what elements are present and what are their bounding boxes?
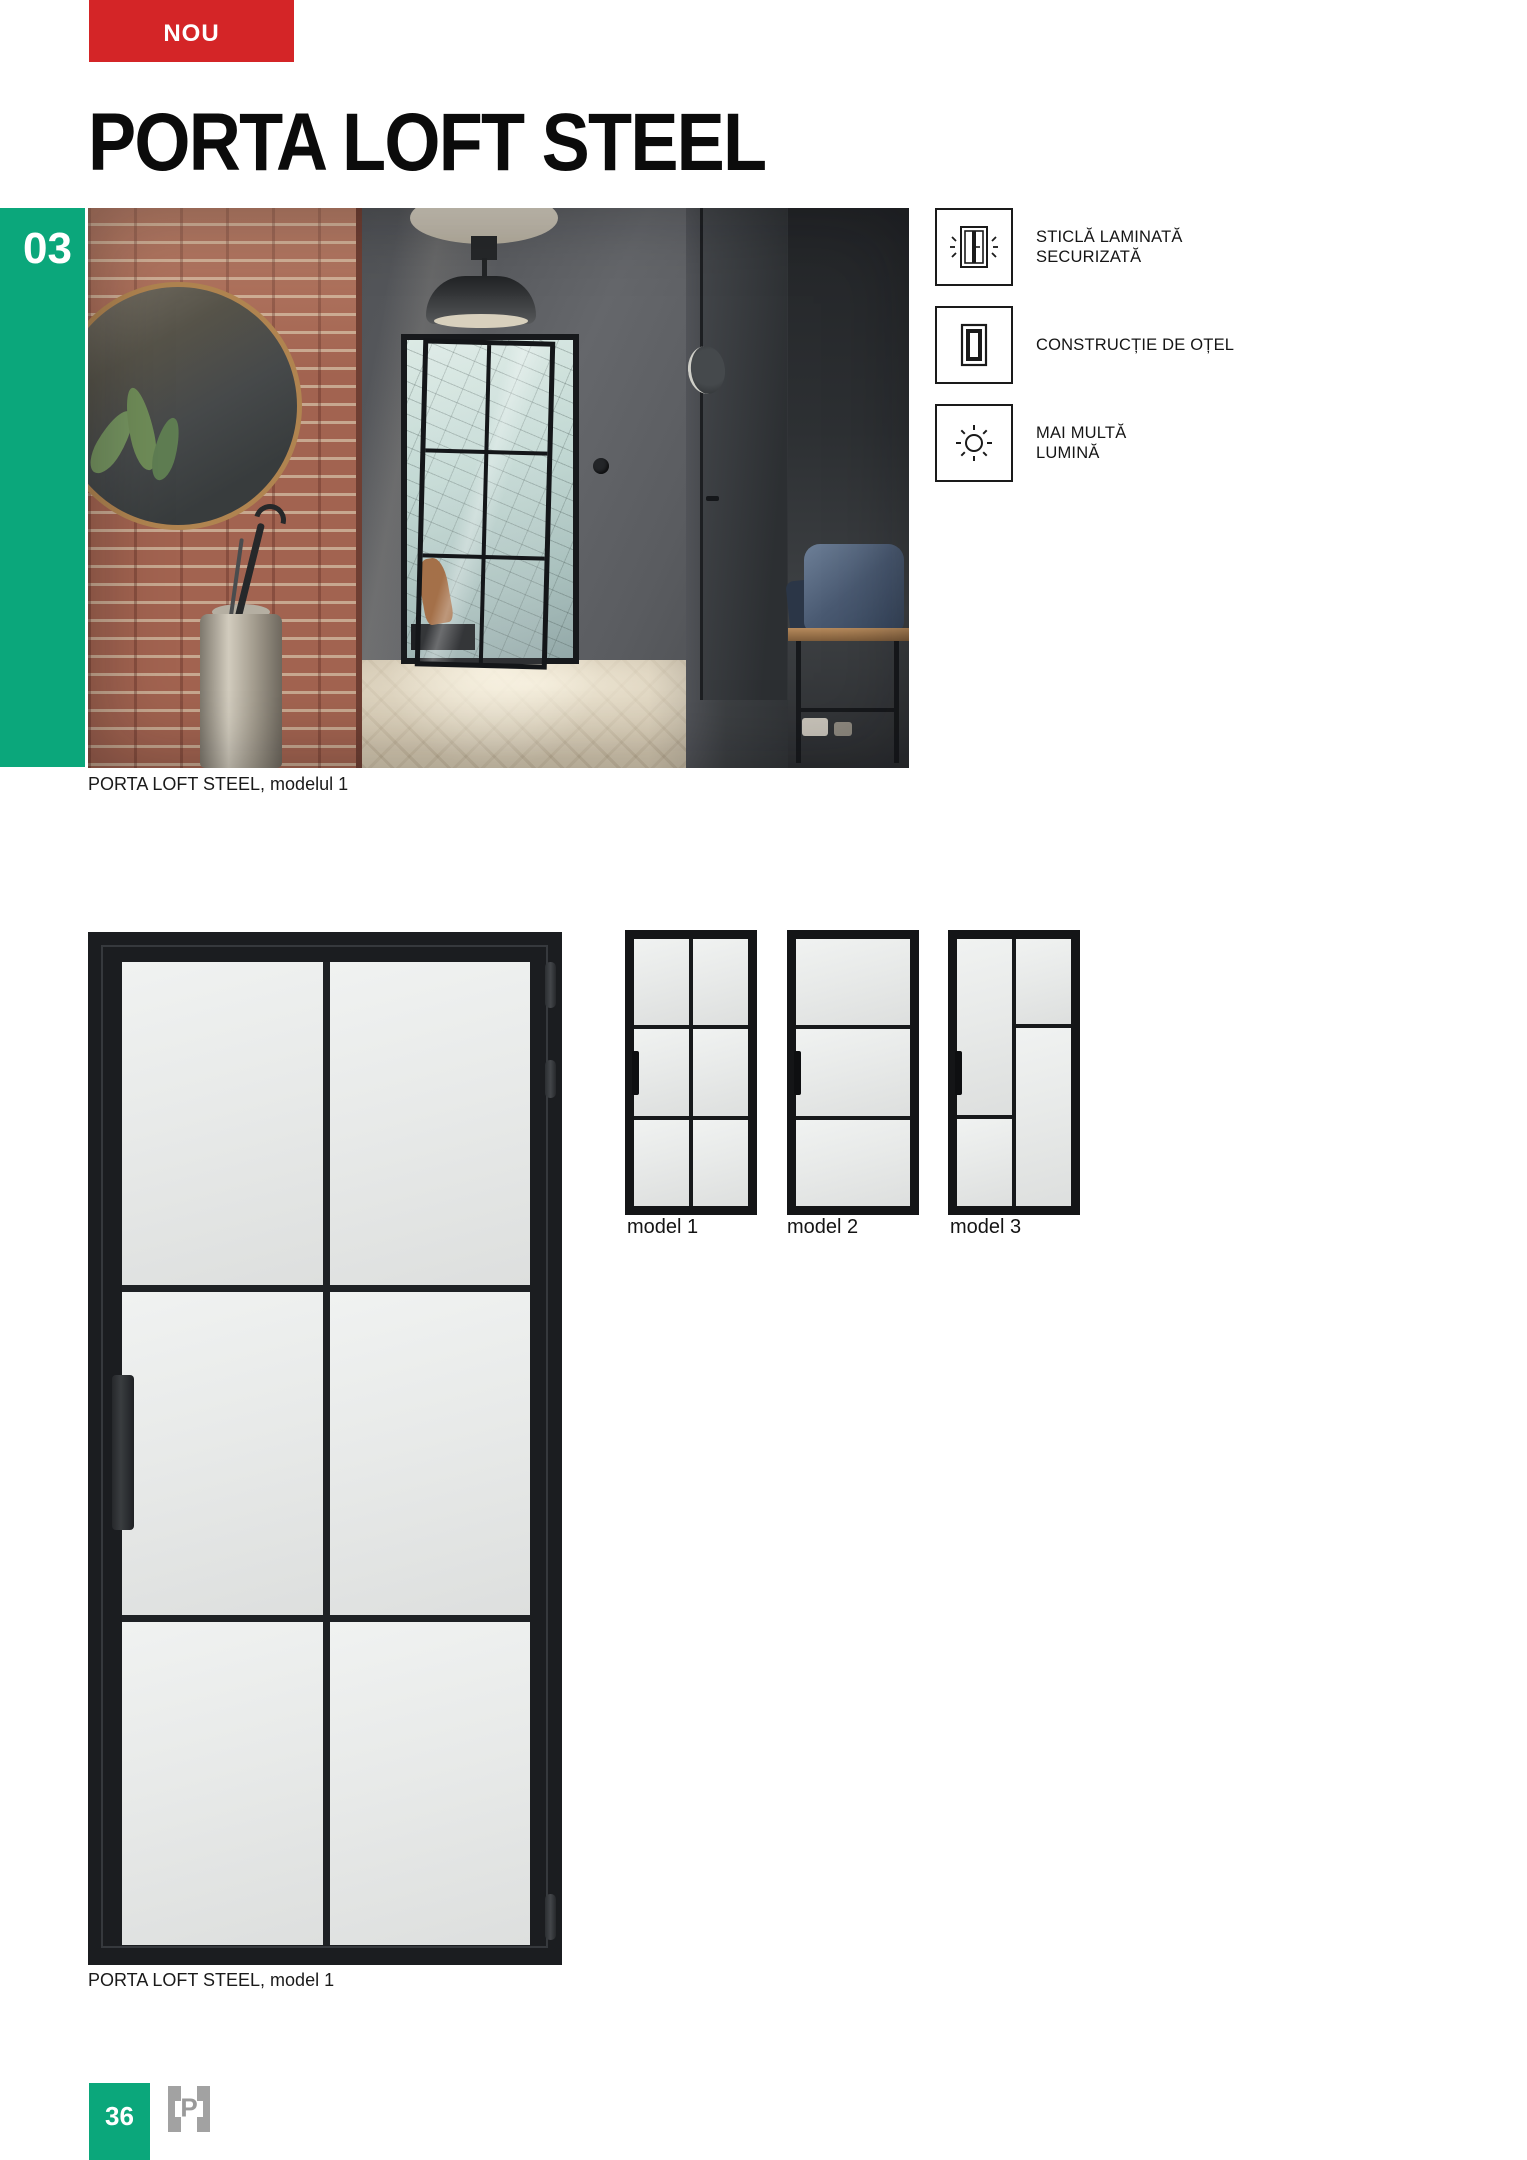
glass-pane [957,939,1012,1115]
photo-vignette [88,208,909,768]
glass-pane [634,939,689,1025]
glass-pane [796,1120,910,1206]
model-1-label: model 1 [627,1216,698,1239]
catalog-page: NOU PORTA LOFT STEEL 03 [0,0,1527,2160]
steel-frame-icon [935,306,1013,384]
glass-pane [634,1029,689,1115]
door-glazing-grid [957,939,1071,1206]
door-model-1-diagram [625,930,757,1215]
glass-pane [957,1119,1012,1206]
door-glazing-grid [796,939,910,1206]
door-hinge [545,962,556,1008]
feature-steel-construction: CONSTRUCȚIE DE OȚEL [935,306,1234,384]
model-3-label: model 3 [950,1216,1021,1239]
glass-pane [122,962,323,1285]
model-2-label: model 2 [787,1216,858,1239]
page-number-box: 36 [89,2083,150,2160]
door-handle [632,1051,639,1095]
page-number: 36 [105,2101,134,2142]
glass-pane [330,1622,531,1945]
glass-pane [634,1120,689,1206]
door-handle [112,1375,134,1530]
new-badge: NOU [89,0,294,62]
photo-caption: PORTA LOFT STEEL, modelul 1 [88,774,348,795]
laminated-glass-icon [935,208,1013,286]
feature-label: STICLĂ LAMINATĂ SECURIZATĂ [1036,227,1183,267]
door-glazing-grid [122,962,530,1945]
door-model-2-diagram [787,930,919,1215]
door-glazing-grid [634,939,748,1206]
glass-pane [1016,939,1071,1024]
glass-pane [693,1120,748,1206]
section-sidebar: 03 [0,208,85,767]
glass-pane [122,1292,323,1615]
logo-letter: P [168,2092,210,2123]
new-badge-label: NOU [163,14,219,48]
feature-label: CONSTRUCȚIE DE OȚEL [1036,335,1234,355]
door-diagram-large [88,932,562,1965]
door-handle [955,1051,962,1095]
feature-label: MAI MULTĂ LUMINĂ [1036,423,1126,463]
door-model-3-diagram [948,930,1080,1215]
door-hinge [545,1060,556,1098]
feature-list: STICLĂ LAMINATĂ SECURIZATĂ CONSTRUCȚIE D… [935,208,1234,482]
porta-logo: P [168,2086,210,2132]
door-handle [794,1051,801,1095]
glass-pane [330,1292,531,1615]
hero-photo [88,208,909,768]
feature-laminated-glass: STICLĂ LAMINATĂ SECURIZATĂ [935,208,1234,286]
feature-more-light: MAI MULTĂ LUMINĂ [935,404,1234,482]
glass-pane [796,1029,910,1115]
glass-pane [693,939,748,1025]
section-number: 03 [23,224,72,274]
door-hinge [545,1894,556,1940]
diagram-caption: PORTA LOFT STEEL, model 1 [88,1970,334,1991]
glass-pane [796,939,910,1025]
glass-pane [1016,1028,1071,1206]
glass-pane [330,962,531,1285]
glass-pane [693,1029,748,1115]
sun-icon [935,404,1013,482]
page-title: PORTA LOFT STEEL [88,96,765,190]
glass-pane [122,1622,323,1945]
